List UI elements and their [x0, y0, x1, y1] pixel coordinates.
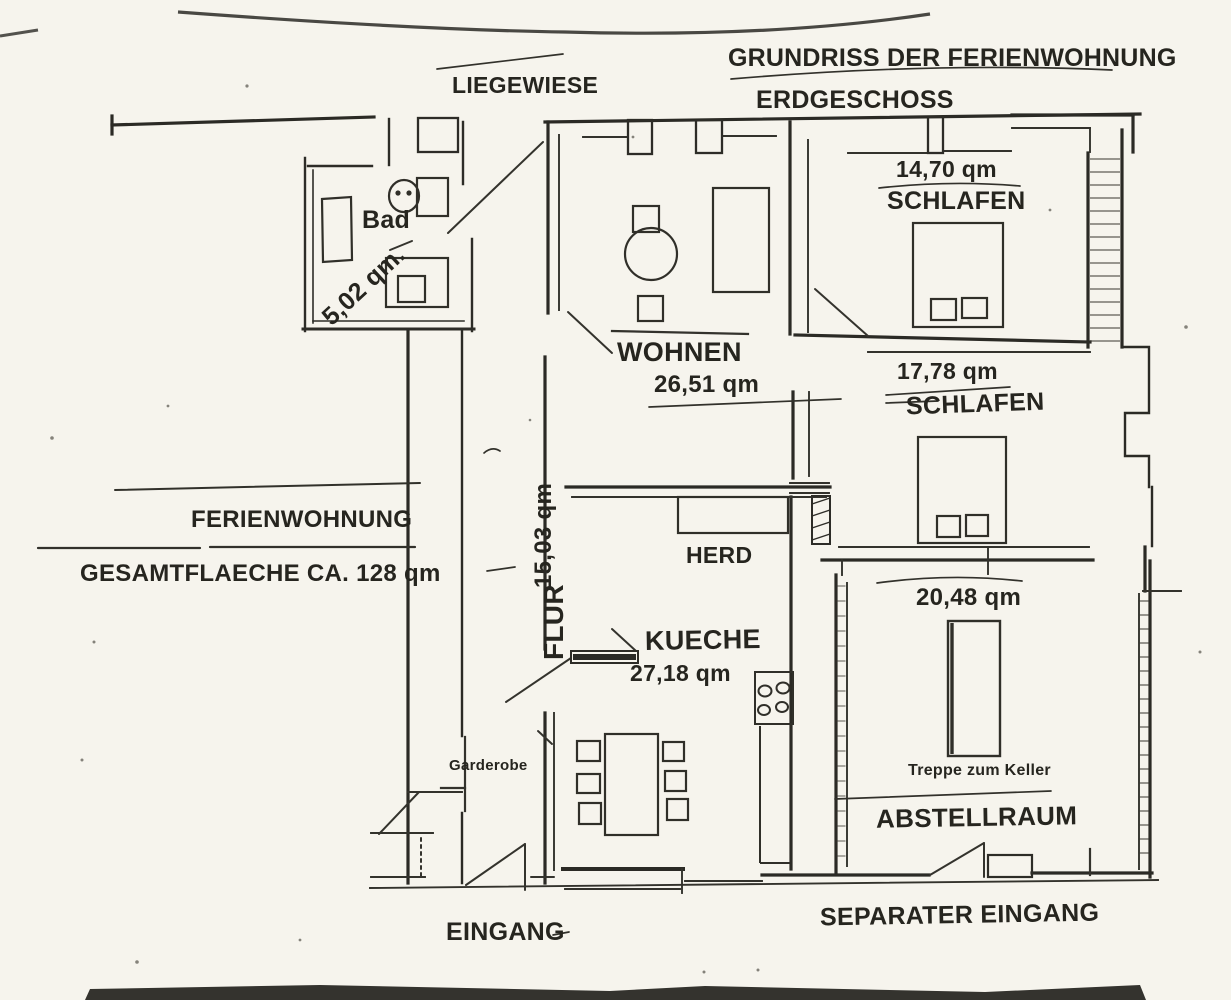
page-title: GRUNDRISS DER FERIENWOHNUNG [728, 46, 1176, 71]
separate-entrance-step [988, 855, 1032, 877]
dining-set [577, 734, 688, 835]
stairs-icon [948, 621, 1000, 756]
wall-hatching [841, 158, 1144, 865]
herd-label: HERD [686, 544, 752, 567]
stove-icon [755, 672, 793, 724]
entrance-separate-label: SEPARATER EINGANG [820, 901, 1100, 931]
interior-walls [370, 128, 1181, 893]
bed-icon [918, 437, 1006, 543]
dining-table-icon [605, 734, 658, 835]
room-label-flur: FLUR [540, 584, 568, 660]
chair-icon [638, 296, 663, 321]
shaft-hatch [812, 496, 830, 544]
room-area-schlafen2: 17,78 qm [897, 360, 998, 383]
kueche-door-threshold [571, 651, 638, 663]
room-area-flur: 15,03 qm [532, 483, 556, 588]
window-piers [418, 117, 943, 154]
sideboard-icon [713, 188, 769, 292]
room-label-abstellraum: ABSTELLRAUM [876, 802, 1078, 832]
stove-counter [678, 497, 788, 533]
bed-icon [913, 223, 1003, 327]
floorplan-page: GRUNDRISS DER FERIENWOHNUNG ERDGESCHOSS … [0, 0, 1231, 1000]
room-area-abstellraum: 20,48 qm [916, 586, 1021, 610]
room-label-schlafen2: SCHLAFEN [906, 390, 1045, 420]
apartment-total-area: GESAMTFLAECHE CA. 128 qm [80, 562, 441, 586]
scan-artifacts [0, 12, 1202, 1000]
room-label-kueche: KUECHE [645, 626, 761, 655]
room-area-wohnen: 26,51 qm [654, 373, 759, 397]
door-swings [379, 142, 984, 890]
page-subtitle: ERDGESCHOSS [756, 88, 954, 113]
room-area-kueche: 27,18 qm [630, 662, 731, 685]
washbasin-icon [322, 197, 352, 262]
entrance-main-label: EINGANG [446, 920, 565, 945]
garderobe-label: Garderobe [449, 758, 528, 773]
floorplan-drawing [0, 0, 1231, 1000]
kitchen-counter [760, 726, 790, 863]
room-area-schlafen1: 14,70 qm [896, 158, 997, 181]
round-table-icon [625, 228, 677, 280]
apartment-name: FERIENWOHNUNG [191, 508, 412, 532]
room-label-schlafen1: SCHLAFEN [887, 189, 1026, 214]
living-furniture [625, 188, 769, 321]
lawn-label: LIEGEWIESE [452, 74, 598, 97]
room-label-bad: Bad [362, 208, 410, 233]
room-label-wohnen: WOHNEN [617, 339, 742, 366]
treppe-label: Treppe zum Keller [908, 763, 1051, 779]
